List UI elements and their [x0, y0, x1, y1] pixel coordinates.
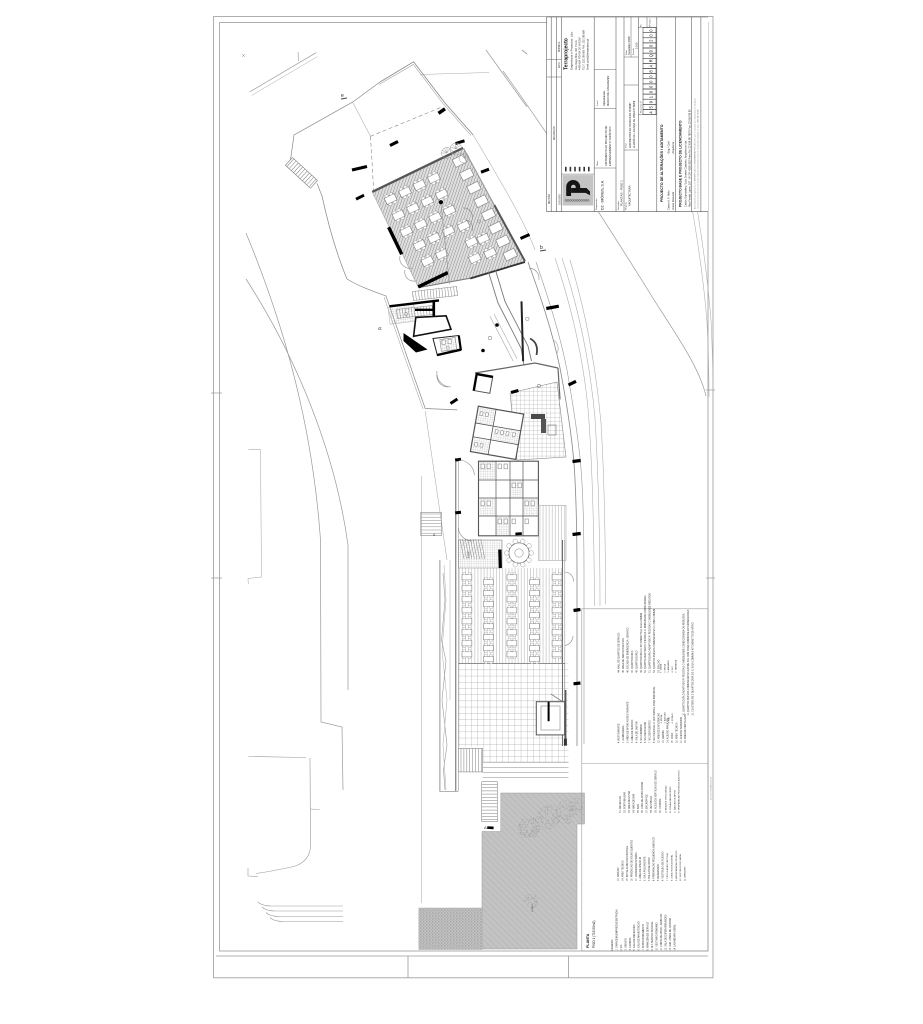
svg-text:- Arquitecta: - Arquitecta	[671, 141, 675, 155]
svg-text:Obra:: Obra:	[596, 160, 599, 166]
svg-text:54. AREA DE BAR: 54. AREA DE BAR	[632, 793, 635, 812]
svg-text:9. ARRECADACAO DE APOIO: 9. ARRECADACAO DE APOIO	[675, 850, 678, 881]
svg-text:1. GARRAFEIRA: 1. GARRAFEIRA	[622, 725, 625, 743]
svg-text:3. ARMARIO: 3. ARMARIO	[667, 660, 670, 673]
svg-text:14. LAVANDARIA GERAL: 14. LAVANDARIA GERAL	[673, 923, 676, 950]
svg-text:4. FORNO: 4. FORNO	[672, 713, 674, 724]
svg-text:6. SALA DE MANUTENCAO: 6. SALA DE MANUTENCAO	[638, 921, 641, 950]
svg-text:47. QUARTO DUPLO: 47. QUARTO DUPLO	[631, 650, 634, 672]
svg-text:46. ESCADA DE EMERGENCIA / SER: 46. ESCADA DE EMERGENCIA / SERVICO	[626, 627, 629, 672]
svg-text:2. MESA: 2. MESA	[663, 664, 666, 673]
svg-text:2. AREA DE APOIO AO RESTAURANT: 2. AREA DE APOIO AO RESTAURANTE	[626, 701, 629, 743]
svg-text:48. QUARTO DUPLO: 48. QUARTO DUPLO	[635, 650, 638, 672]
svg-text:Email: geral@terraprojecto.pt: Email: geral@terraprojecto.pt	[587, 39, 590, 70]
svg-text:Local:: Local:	[597, 100, 599, 106]
svg-text:4. W.C.: 4. W.C.	[672, 665, 674, 673]
svg-text:PROJECTO DE ALTERAÇÕES / ADITA: PROJECTO DE ALTERAÇÕES / ADITAMENTO	[659, 124, 664, 202]
svg-text:AE: AE	[484, 825, 490, 830]
svg-text:TELF. 252 298 690 FAX. 252 29: TELF. 252 298 690 FAX. 252 298 699	[583, 29, 586, 70]
svg-text:1. CAMA: 1. CAMA	[660, 663, 663, 672]
svg-text:- Eng.º Civil: - Eng.º Civil	[667, 141, 671, 155]
svg-text:Requerente:: Requerente:	[595, 198, 598, 210]
svg-text:ADITAMENTO AO PROJECTO DE: ADITAMENTO AO PROJECTO DE	[604, 126, 608, 166]
svg-text:PISO 1 (715.50m2): PISO 1 (715.50m2)	[592, 921, 596, 948]
svg-text:Fls.: Fls.	[641, 23, 643, 27]
svg-text:13. GINASIO: 13. GINASIO	[617, 867, 620, 881]
svg-text:14. AREA TECNICA: 14. AREA TECNICA	[622, 860, 625, 881]
svg-text:A. AREA DE CIRCULACAO: A. AREA DE CIRCULACAO	[665, 785, 668, 812]
svg-text:MARCO DE CANAVEZES: MARCO DE CANAVEZES	[606, 76, 610, 106]
svg-text:13. GAB. CHEFE DE COZINHA: 13. GAB. CHEFE DE COZINHA	[669, 917, 672, 950]
svg-text:2. ATL: 2. ATL	[620, 943, 623, 950]
svg-text:PLANTAS - PISO 1: PLANTAS - PISO 1	[620, 180, 624, 206]
svg-text:2. BALCAO: 2. BALCAO	[664, 712, 667, 724]
svg-text:REVISÃO: REVISÃO	[548, 194, 551, 204]
svg-text:DATA: DATA	[558, 62, 561, 68]
svg-text:3. BALCAO DE APOIO: 3. BALCAO DE APOIO	[648, 857, 651, 881]
svg-text:3. AREA DE SERVICO: 3. AREA DE SERVICO	[631, 719, 634, 743]
svg-text:8. W.C PESSOAL C/ VESTIARIO E: 8. W.C PESSOAL C/ VESTIARIO E ZONA INDIV…	[653, 686, 656, 743]
svg-text:4. SALA DE JANTAR: 4. SALA DE JANTAR	[635, 721, 638, 743]
svg-text:12. SALA DE ESPERA/REUNIOES: 12. SALA DE ESPERA/REUNIOES	[664, 914, 667, 950]
svg-text:459.10.0.008.ARQ.002.00: 459.10.0.008.ARQ.002.00	[710, 776, 713, 800]
svg-text:4. RESTAURANTE: 4. RESTAURANTE	[618, 723, 621, 743]
svg-text:Carlos Guimarães / Luís Soares: Carlos Guimarães / Luís Soares Carneiro,…	[684, 140, 688, 207]
svg-text:1. AREA DE CHECK-IN: 1. AREA DE CHECK-IN	[639, 857, 642, 881]
svg-text:53. AREA DE ESTAR: 53. AREA DE ESTAR	[628, 791, 631, 813]
svg-text:B. ZONA A SANCA VIDRO: B. ZONA A SANCA VIDRO	[669, 786, 672, 812]
svg-text:17. LAVANDARIA INTERNA: 17. LAVANDARIA INTERNA	[635, 852, 638, 881]
svg-text:10. VESTIBULO DE SAIDA: 10. VESTIBULO DE SAIDA	[679, 854, 682, 881]
svg-text:49. QUARTO DUPLO C/ KITCHENETT: 49. QUARTO DUPLO C/ KITCHENETTE E SALA C…	[640, 613, 643, 673]
svg-text:Processo nº: Processo nº	[640, 101, 643, 113]
svg-text:6. W.C MASCULINO: 6. W.C MASCULINO	[644, 722, 647, 743]
svg-text:EMISSÃO: EMISSÃO	[558, 194, 561, 205]
svg-text:Projecto:: Projecto:	[625, 201, 628, 210]
svg-text:Este desenho é propriedade da: Este desenho é propriedade da TERRAPROJE…	[694, 99, 697, 209]
svg-text:Fase:: Fase:	[626, 142, 628, 148]
svg-text:5. W.C FEMININO: 5. W.C FEMININO	[641, 724, 643, 743]
svg-text:59. ACESSOS VERTICAIS DE SERVI: 59. ACESSOS VERTICAIS DE SERVICO	[655, 770, 658, 813]
svg-text:R: R	[649, 59, 654, 62]
svg-text:1. MESA: 1. MESA	[660, 714, 663, 723]
svg-text:DESCRIÇÃO: DESCRIÇÃO	[553, 126, 556, 140]
svg-text:45. AREA DE SERVICO DE PISO: 45. AREA DE SERVICO DE PISO	[622, 638, 625, 673]
svg-text:44. HALL DE QUARTOS DE SERVICO: 44. HALL DE QUARTOS DE SERVICO	[618, 632, 621, 672]
svg-text:3. PIA: 3. PIA	[667, 717, 670, 723]
svg-text:DZ - IMÓVEIS, S.A.: DZ - IMÓVEIS, S.A.	[600, 180, 605, 210]
svg-text:17. ACESSO SUPERIOR: 17. ACESSO SUPERIOR	[680, 717, 683, 743]
svg-text:52. PORTARIA BAR: 52. PORTARIA BAR	[624, 792, 627, 813]
svg-text:55. BAR: 55. BAR	[637, 804, 640, 813]
svg-text:Alpendurada,: Alpendurada,	[602, 90, 606, 106]
svg-text:PLANTA: PLANTA	[586, 933, 590, 948]
svg-text:52. QUARTOS DUPLOS COMUNICANTE: 52. QUARTOS DUPLOS COMUNICANTES C/ ZONA …	[653, 609, 656, 673]
svg-text:10. QUARTO DUPLO ADAPTADO P/ P: 10. QUARTO DUPLO ADAPTADO P/ PESSOAS C/ …	[683, 613, 686, 716]
svg-text:Rua Fernão Lopes, 187 - 6º D/F: Rua Fernão Lopes, 187 - 6º D/F 4150-318 …	[688, 109, 692, 207]
svg-text:12. CLUSTERS DE 2 QUARTOS DUPL: 12. CLUSTERS DE 2 QUARTOS DUPLOS C/ SALA…	[692, 622, 695, 715]
svg-text:Joana Resende: Joana Resende	[671, 191, 675, 210]
svg-text:15. COPA: 15. COPA	[671, 732, 674, 743]
svg-text:51. RECEPCAO: 51. RECEPCAO	[619, 796, 622, 813]
svg-text:13. JARDIM: 13. JARDIM	[662, 731, 665, 743]
svg-text:5. RESERVADO: 5. RESERVADO	[657, 864, 660, 881]
svg-text:11. ARMAZEM: 11. ARMAZEM	[684, 867, 687, 881]
svg-text:ARQUITECTURA: ARQUITECTURA	[628, 185, 632, 206]
svg-text:18. AREA DE VENTILACAO: 18. AREA DE VENTILACAO	[684, 714, 687, 743]
svg-text:57. BACKOFFICE: 57. BACKOFFICE	[646, 794, 649, 813]
svg-text:ALVARÁ DE LICENÇA DE OBRA Nº 6: ALVARÁ DE LICENÇA DE OBRA Nº 66/08	[632, 100, 636, 148]
svg-text:Novembro 2008: Novembro 2008	[627, 36, 631, 55]
svg-text:56. COPA DE APOIO AO BAR: 56. COPA DE APOIO AO BAR	[641, 782, 644, 813]
svg-text:4. COZINHA: 4. COZINHA	[629, 937, 632, 950]
svg-text:Engenharia e Projectos, Lda.: Engenharia e Projectos, Lda.	[570, 31, 574, 70]
svg-text:EMPREENDIMENTO TURÍSTICO: EMPREENDIMENTO TURÍSTICO	[608, 127, 612, 166]
svg-text:50. QUARTO ADAPTADO P/ PESSOAS: 50. QUARTO ADAPTADO P/ PESSOAS C/ MOBILI…	[644, 595, 647, 673]
svg-text:9. W.C SERVICO PESSOAL: 9. W.C SERVICO PESSOAL	[651, 921, 654, 951]
svg-text:8. ZONA TECNICA GERAL: 8. ZONA TECNICA GERAL	[670, 854, 673, 881]
svg-text:RUBRICA: RUBRICA	[558, 41, 561, 52]
svg-text:D. PREPARACAO PEQUENOS ALMOCOS: D. PREPARACAO PEQUENOS ALMOCOS	[678, 770, 681, 813]
svg-text:A: A	[649, 65, 654, 68]
svg-text:16. PRODUCAO DE AGUAS QUENTES: 16. PRODUCAO DE AGUAS QUENTES	[630, 839, 633, 881]
svg-text:51. QUARTO DUPLO ADAPTADO P/ P: 51. QUARTO DUPLO ADAPTADO P/ PESSOAS C/ …	[649, 593, 652, 673]
svg-text:11. CORTE DE APOIO - ALMOCOS: 11. CORTE DE APOIO - ALMOCOS	[660, 913, 663, 950]
svg-text:10. VESTIARIO FEMININO: 10. VESTIARIO FEMININO	[656, 922, 659, 950]
svg-text:1. GARAGEM (EMPREGUE/ENTRADA): 1. GARAGEM (EMPREGUE/ENTRADA)	[616, 909, 619, 950]
svg-text:58. VESTIBULO: 58. VESTIBULO	[651, 796, 653, 813]
svg-text:1:100: 1:100	[634, 42, 638, 49]
svg-text:60. COZINHA: 60. COZINHA	[659, 798, 662, 813]
svg-text:8. ARMAZEM DE SERVICO: 8. ARMAZEM DE SERVICO	[647, 922, 650, 951]
svg-text:ADITAMENTO AO PROCESSO Nº16387: ADITAMENTO AO PROCESSO Nº16387	[628, 102, 632, 148]
svg-text:7. CIRCULACAO VERTICAL: 7. CIRCULACAO VERTICAL	[666, 852, 669, 881]
svg-text:Carlos A. F. Melo: Carlos A. F. Melo	[667, 190, 671, 210]
svg-text:LEGENDA: LEGENDA	[611, 939, 614, 950]
svg-text:3. GINASIO: 3. GINASIO	[624, 938, 627, 950]
svg-text:Nº Ordem: Nº Ordem	[649, 18, 652, 27]
svg-text:7. APROVISIONAMENTO: 7. APROVISIONAMENTO	[642, 924, 645, 951]
svg-text:C. BALCAO DE APOIO: C. BALCAO DE APOIO	[673, 790, 676, 813]
svg-text:2. SALA POLIVALENTE: 2. SALA POLIVALENTE	[644, 856, 647, 881]
svg-text:no todo ou em parte sem autori: no todo ou em parte sem autorização expr…	[697, 109, 700, 209]
svg-text:11. QUARTOS DUPLOS COMUNICANTE: 11. QUARTOS DUPLOS COMUNICANTES ENTRE SI…	[687, 609, 690, 715]
svg-text:4495-654 PÓVOA DE VARZIM: 4495-654 PÓVOA DE VARZIM	[579, 37, 582, 70]
svg-text:d: d	[433, 533, 435, 537]
svg-text:16. AREA TECNICA: 16. AREA TECNICA	[675, 722, 678, 743]
svg-text:6. VESTIBULO DE ACESSO: 6. VESTIBULO DE ACESSO	[662, 851, 665, 881]
svg-text:4. PREPARACAO PEQUENOS ALMOCOS: 4. PREPARACAO PEQUENOS ALMOCOS	[653, 837, 656, 881]
svg-text:PROJECTO BASE E PROJECTO DE LI: PROJECTO BASE E PROJECTO DE LICENCIAMENT…	[679, 120, 683, 207]
svg-text:5. VARANDA: 5. VARANDA	[675, 659, 678, 672]
svg-text:15. INSTALACOES DO PESSOAL: 15. INSTALACOES DO PESSOAL	[626, 845, 629, 881]
svg-text:(5) ARV: (5) ARV	[531, 904, 534, 912]
svg-text:7. W.C DEFICIENTES: 7. W.C DEFICIENTES	[650, 720, 652, 743]
svg-text:5. SALA DE REFEICOES: 5. SALA DE REFEICOES	[633, 924, 636, 951]
